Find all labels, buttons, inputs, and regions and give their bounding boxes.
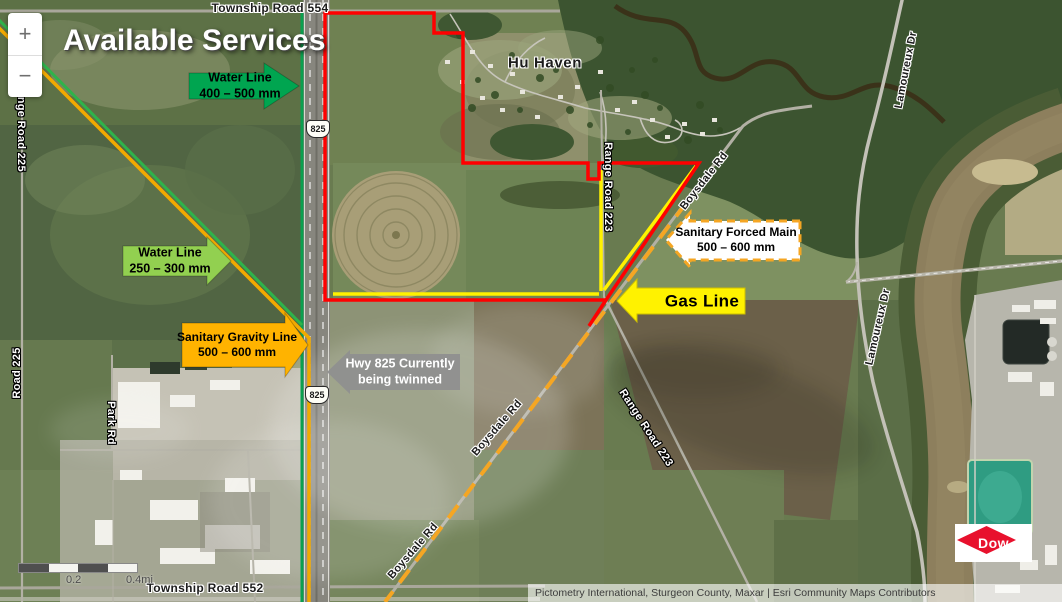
zoom-in-button[interactable]: + (8, 13, 42, 55)
zoom-control: + − (8, 13, 42, 97)
dow-logo-text: Dow (978, 535, 1009, 551)
crop-circle (332, 171, 460, 299)
scale-bar-segments (18, 563, 138, 573)
scale-bar: 0.2 0.4mi (18, 563, 138, 586)
map-viewport[interactable]: Township Road 554 Township Road 552 Hu H… (0, 0, 1062, 602)
hwy-825-shield-north: 825 (306, 120, 330, 138)
page-title: Available Services (63, 24, 325, 58)
aerial-basemap (0, 0, 1062, 602)
scale-bar-mid-label: 0.2 (66, 574, 81, 586)
scale-bar-end-label: 0.4mi (126, 574, 153, 586)
dow-logo: Dow (955, 524, 1032, 562)
zoom-out-button[interactable]: − (8, 56, 42, 98)
hwy-825-shield-south: 825 (305, 386, 329, 404)
map-attribution: Pictometry International, Sturgeon Count… (528, 584, 1062, 602)
